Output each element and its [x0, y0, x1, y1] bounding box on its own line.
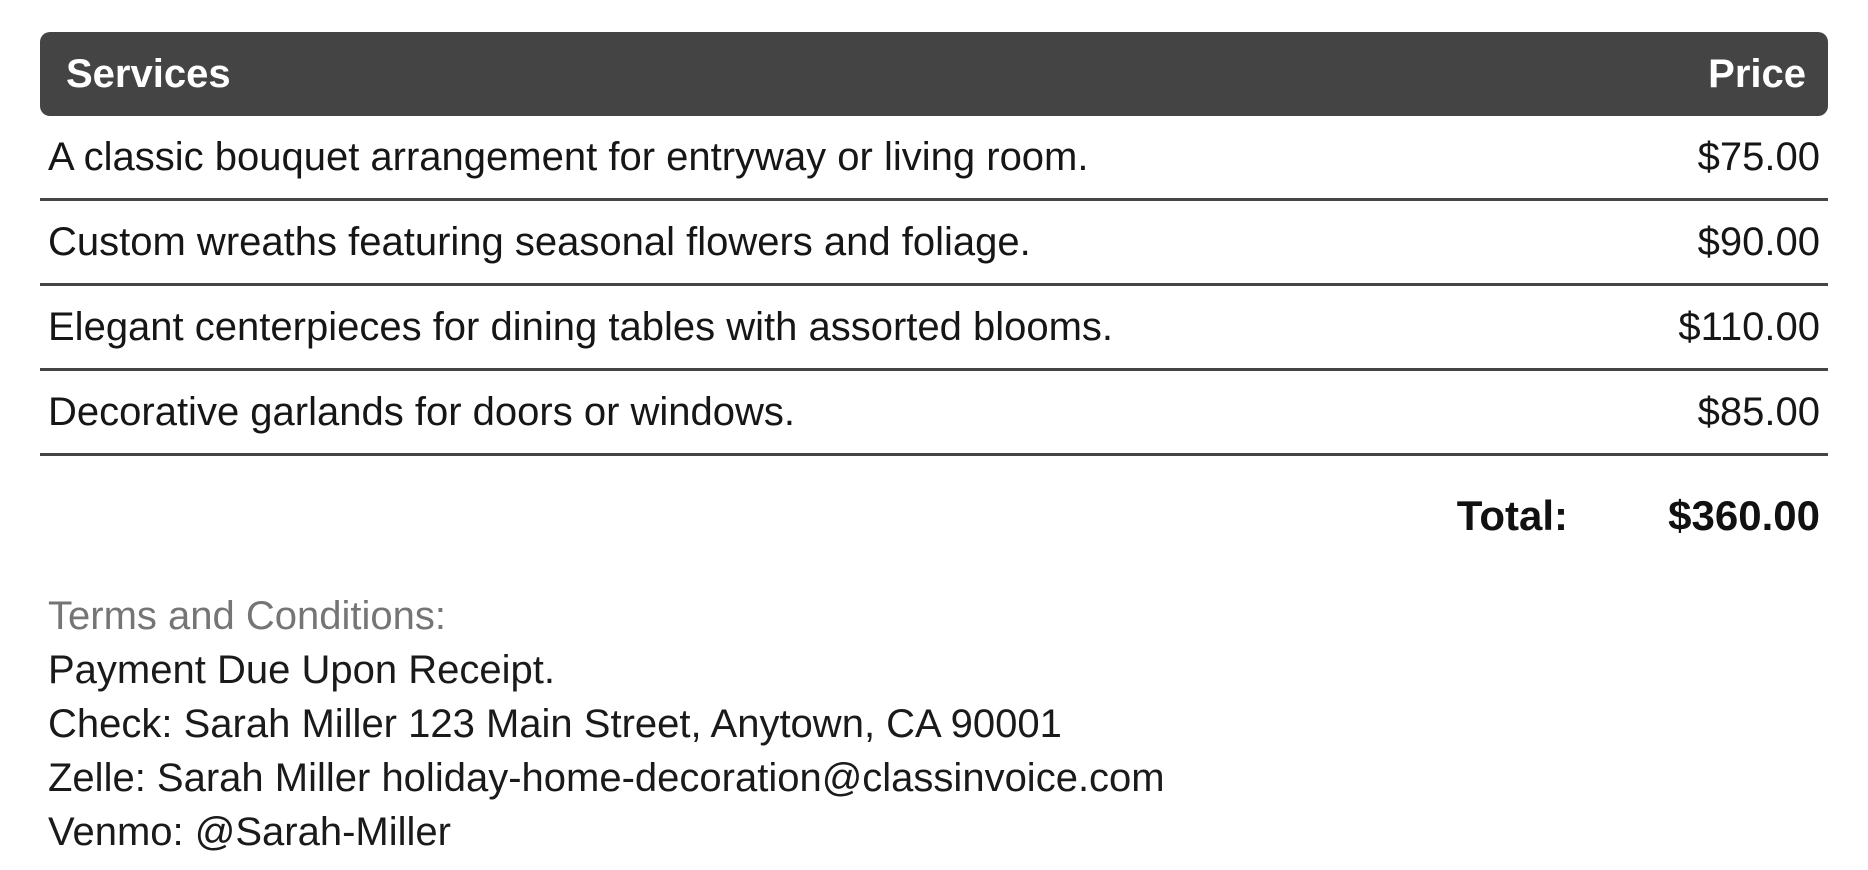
- invoice-page: Services Price A classic bouquet arrange…: [0, 0, 1868, 870]
- terms-line-payment: Payment Due Upon Receipt.: [48, 643, 1828, 697]
- header-row: Services Price: [40, 32, 1828, 116]
- total-row: Total: $360.00: [40, 456, 1828, 563]
- services-table: Services Price A classic bouquet arrange…: [40, 32, 1828, 563]
- services-table-footer: Total: $360.00: [40, 456, 1828, 563]
- table-row: Custom wreaths featuring seasonal flower…: [40, 201, 1828, 286]
- table-row: Elegant centerpieces for dining tables w…: [40, 286, 1828, 371]
- service-description: Custom wreaths featuring seasonal flower…: [40, 201, 1588, 286]
- terms-line-venmo: Venmo: @Sarah-Miller: [48, 805, 1828, 859]
- service-description: A classic bouquet arrangement for entryw…: [40, 116, 1588, 201]
- total-value: $360.00: [1588, 456, 1828, 563]
- service-price: $85.00: [1588, 371, 1828, 456]
- terms-and-conditions-section: Terms and Conditions: Payment Due Upon R…: [40, 589, 1828, 859]
- services-table-body: A classic bouquet arrangement for entryw…: [40, 116, 1828, 456]
- services-column-header: Services: [40, 32, 1588, 116]
- total-label: Total:: [40, 456, 1588, 563]
- service-description: Elegant centerpieces for dining tables w…: [40, 286, 1588, 371]
- service-price: $90.00: [1588, 201, 1828, 286]
- service-price: $75.00: [1588, 116, 1828, 201]
- services-table-header: Services Price: [40, 32, 1828, 116]
- terms-line-zelle: Zelle: Sarah Miller holiday-home-decorat…: [48, 751, 1828, 805]
- table-row: Decorative garlands for doors or windows…: [40, 371, 1828, 456]
- service-price: $110.00: [1588, 286, 1828, 371]
- table-row: A classic bouquet arrangement for entryw…: [40, 116, 1828, 201]
- terms-heading: Terms and Conditions:: [48, 589, 1828, 643]
- terms-line-check: Check: Sarah Miller 123 Main Street, Any…: [48, 697, 1828, 751]
- price-column-header: Price: [1588, 32, 1828, 116]
- service-description: Decorative garlands for doors or windows…: [40, 371, 1588, 456]
